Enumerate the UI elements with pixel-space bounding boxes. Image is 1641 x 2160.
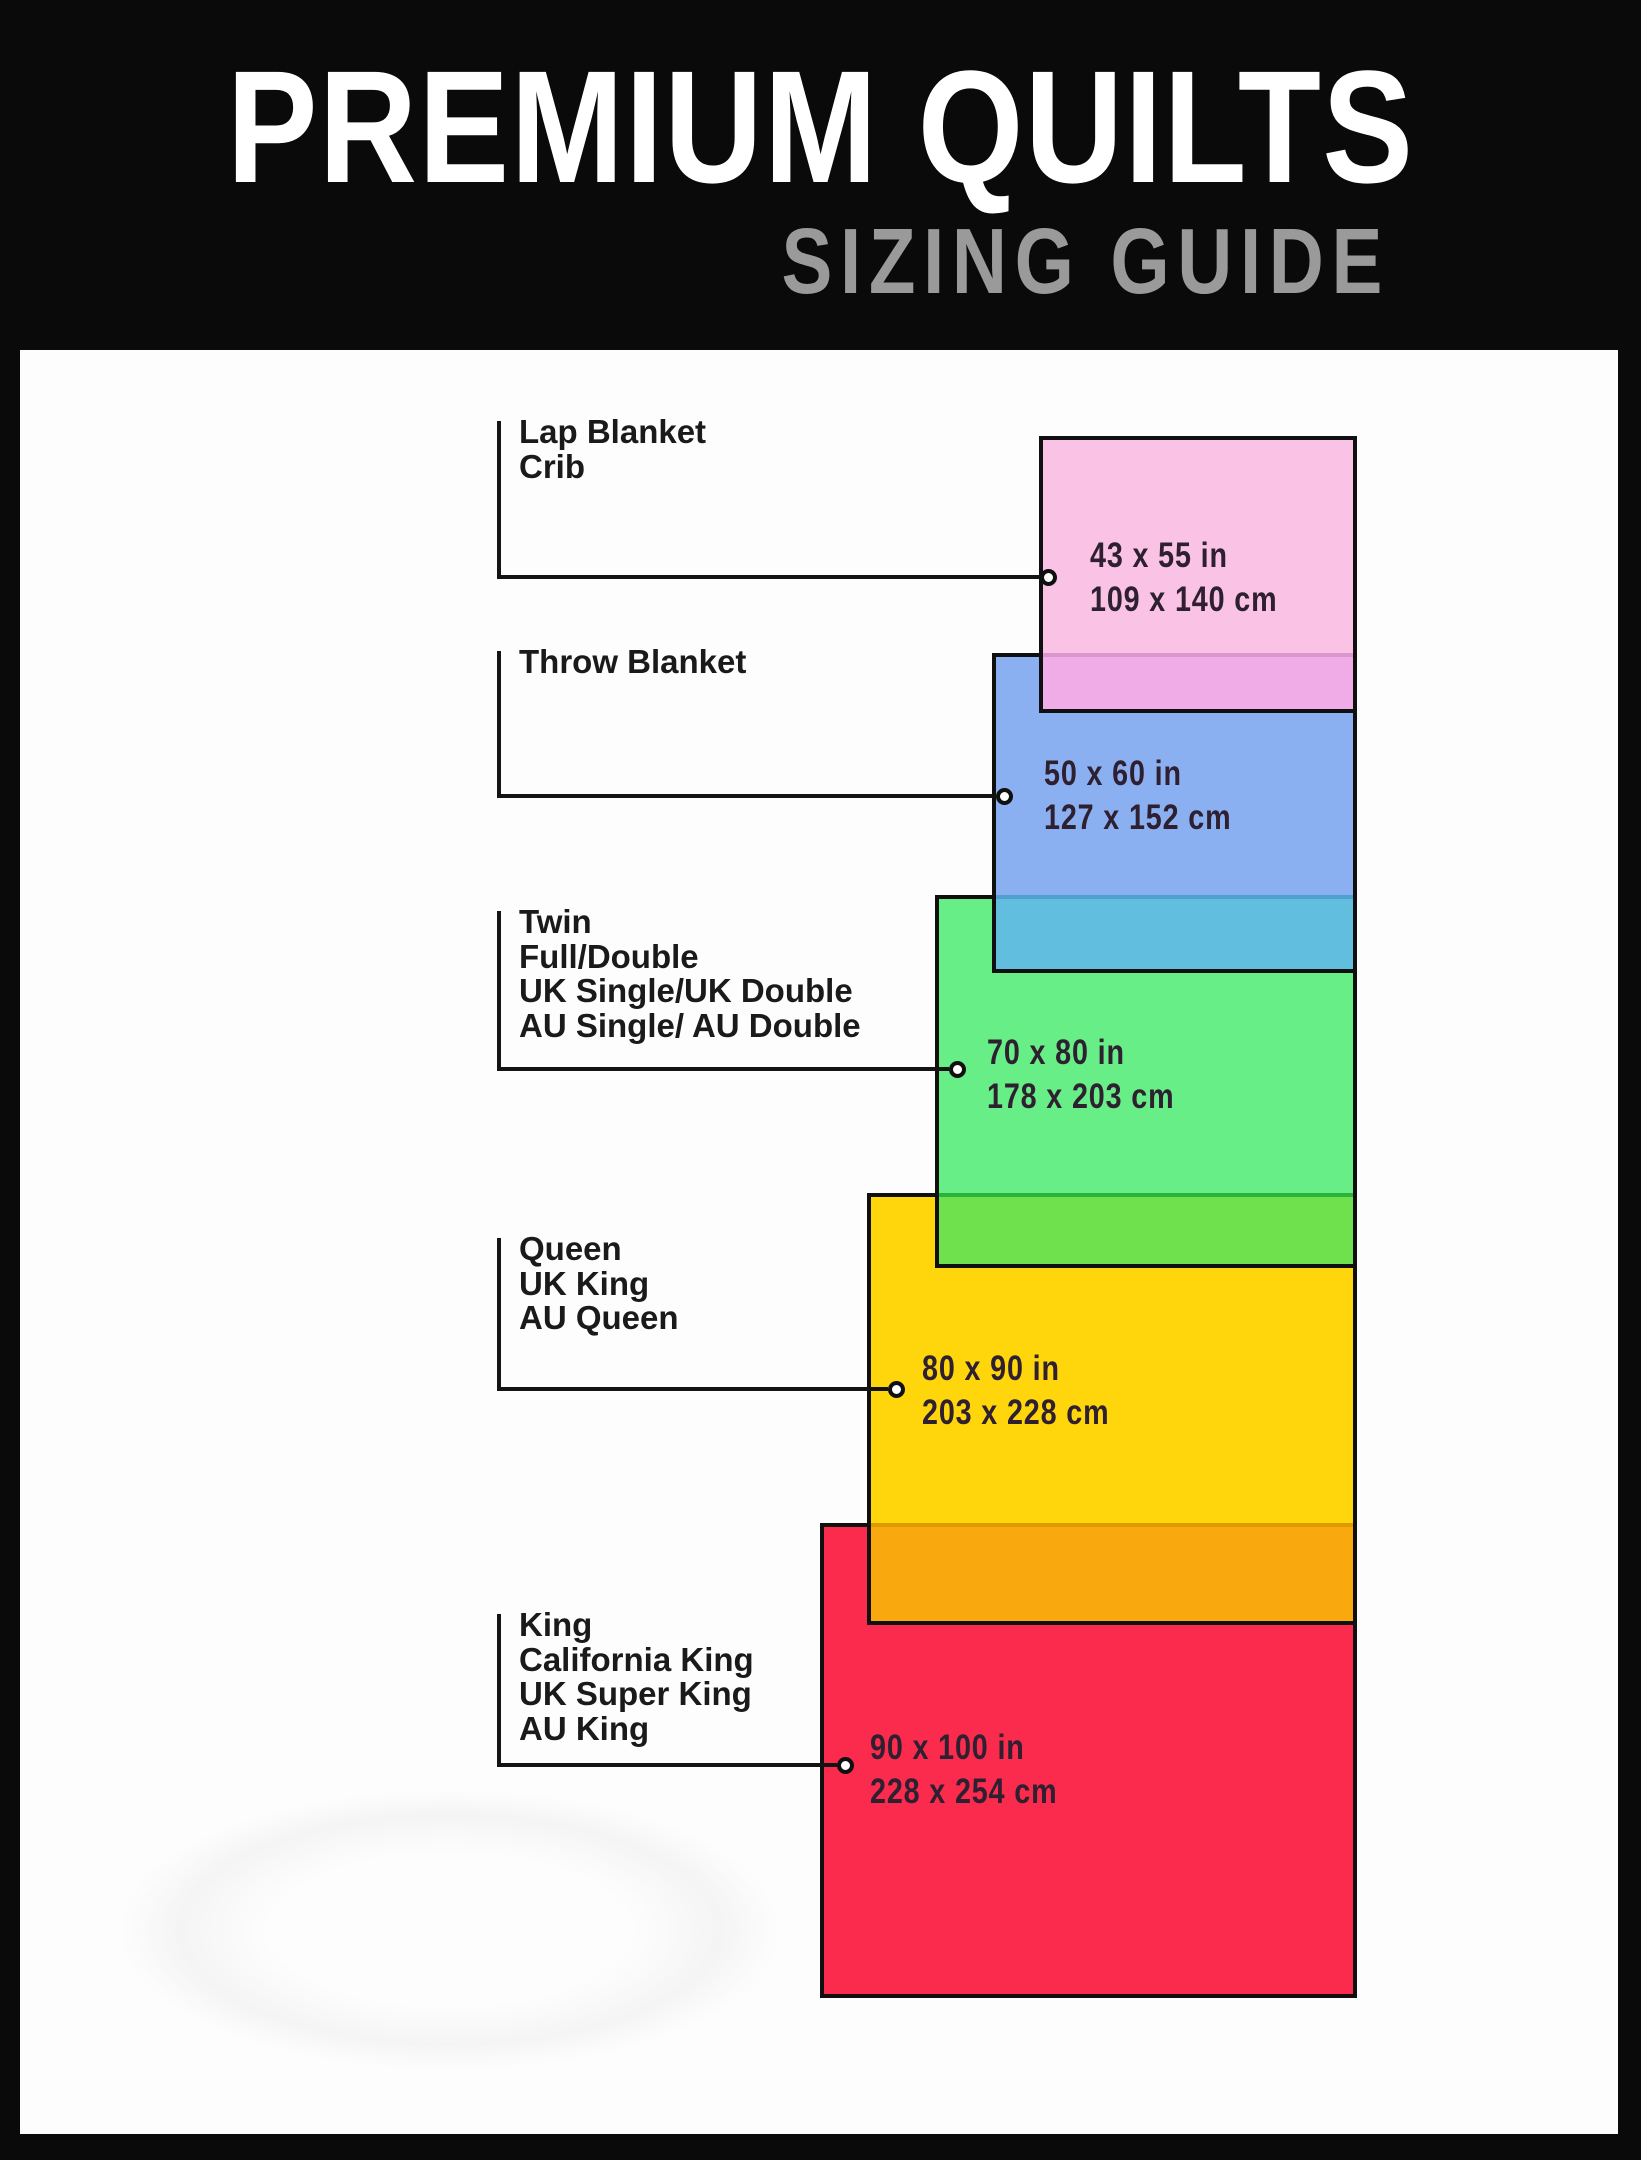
connector-vertical-line xyxy=(497,1238,501,1391)
overlap-band xyxy=(871,1527,1353,1621)
pointer-circle xyxy=(837,1757,854,1774)
pointer-circle xyxy=(996,788,1013,805)
page-subtitle: SIZING GUIDE xyxy=(648,215,1390,308)
connector-horizontal-line xyxy=(499,794,996,798)
size-label-group-twin-full-double: TwinFull/DoubleUK Single/UK DoubleAU Sin… xyxy=(519,905,861,1043)
overlap-border-line xyxy=(1043,653,1353,657)
size-label-line: AU Queen xyxy=(519,1301,679,1336)
connector-vertical-line xyxy=(497,1614,501,1767)
size-label-group-queen-uk-king: QueenUK KingAU Queen xyxy=(519,1232,679,1336)
page-subtitle-text: SIZING GUIDE xyxy=(782,215,1390,308)
dimension-cm: 109 x 140 cm xyxy=(1090,578,1319,622)
dimension-text: 43 x 55 in 109 x 140 cm xyxy=(1090,534,1319,622)
size-label-line: AU King xyxy=(519,1712,754,1747)
size-label-line: Lap Blanket xyxy=(519,415,706,450)
size-label-line: UK Single/UK Double xyxy=(519,974,861,1009)
paper-watermark-smudge xyxy=(120,1790,780,2070)
size-label-line: UK Super King xyxy=(519,1677,754,1712)
connector-horizontal-line xyxy=(499,575,1040,579)
overlap-band xyxy=(939,1197,1353,1264)
size-label-group-lap-blanket-crib: Lap BlanketCrib xyxy=(519,415,706,484)
pointer-circle xyxy=(1040,569,1057,586)
dimension-inches: 80 x 90 in xyxy=(922,1347,1151,1391)
dimension-inches: 70 x 80 in xyxy=(987,1031,1216,1075)
size-label-line: UK King xyxy=(519,1267,679,1302)
dimension-text: 80 x 90 in 203 x 228 cm xyxy=(922,1347,1151,1435)
dimension-text: 90 x 100 in 228 x 254 cm xyxy=(870,1726,1099,1814)
size-label-line: Twin xyxy=(519,905,861,940)
dimension-inches: 90 x 100 in xyxy=(870,1726,1099,1770)
size-label-line: Full/Double xyxy=(519,940,861,975)
connector-vertical-line xyxy=(497,421,501,579)
connector-horizontal-line xyxy=(499,1067,949,1071)
pointer-circle xyxy=(949,1061,966,1078)
dimension-text: 70 x 80 in 178 x 203 cm xyxy=(987,1031,1216,1119)
dimension-cm: 127 x 152 cm xyxy=(1044,796,1273,840)
page-title-text: PREMIUM QUILTS xyxy=(227,47,1415,207)
size-label-line: California King xyxy=(519,1643,754,1678)
size-label-line: King xyxy=(519,1608,754,1643)
dimension-cm: 203 x 228 cm xyxy=(922,1391,1151,1435)
sizing-guide-infographic: PREMIUM QUILTS SIZING GUIDE Lap BlanketC… xyxy=(0,0,1641,2160)
dimension-inches: 43 x 55 in xyxy=(1090,534,1319,578)
connector-vertical-line xyxy=(497,911,501,1071)
dimension-cm: 178 x 203 cm xyxy=(987,1075,1216,1119)
dimension-inches: 50 x 60 in xyxy=(1044,752,1273,796)
dimension-cm: 228 x 254 cm xyxy=(870,1770,1099,1814)
size-label-line: Throw Blanket xyxy=(519,645,746,680)
connector-horizontal-line xyxy=(499,1387,888,1391)
overlap-border-line xyxy=(939,1193,1353,1197)
dimension-text: 50 x 60 in 127 x 152 cm xyxy=(1044,752,1273,840)
overlap-border-line xyxy=(871,1523,1353,1527)
size-label-group-king-california-king: KingCalifornia KingUK Super KingAU King xyxy=(519,1608,754,1746)
overlap-band xyxy=(1043,657,1353,709)
pointer-circle xyxy=(888,1381,905,1398)
overlap-band xyxy=(996,899,1353,969)
size-label-group-throw-blanket: Throw Blanket xyxy=(519,645,746,680)
overlap-border-line xyxy=(996,895,1353,899)
connector-vertical-line xyxy=(497,651,501,798)
page-title: PREMIUM QUILTS xyxy=(0,47,1641,207)
connector-horizontal-line xyxy=(499,1763,837,1767)
size-label-line: Crib xyxy=(519,450,706,485)
size-label-line: AU Single/ AU Double xyxy=(519,1009,861,1044)
size-label-line: Queen xyxy=(519,1232,679,1267)
